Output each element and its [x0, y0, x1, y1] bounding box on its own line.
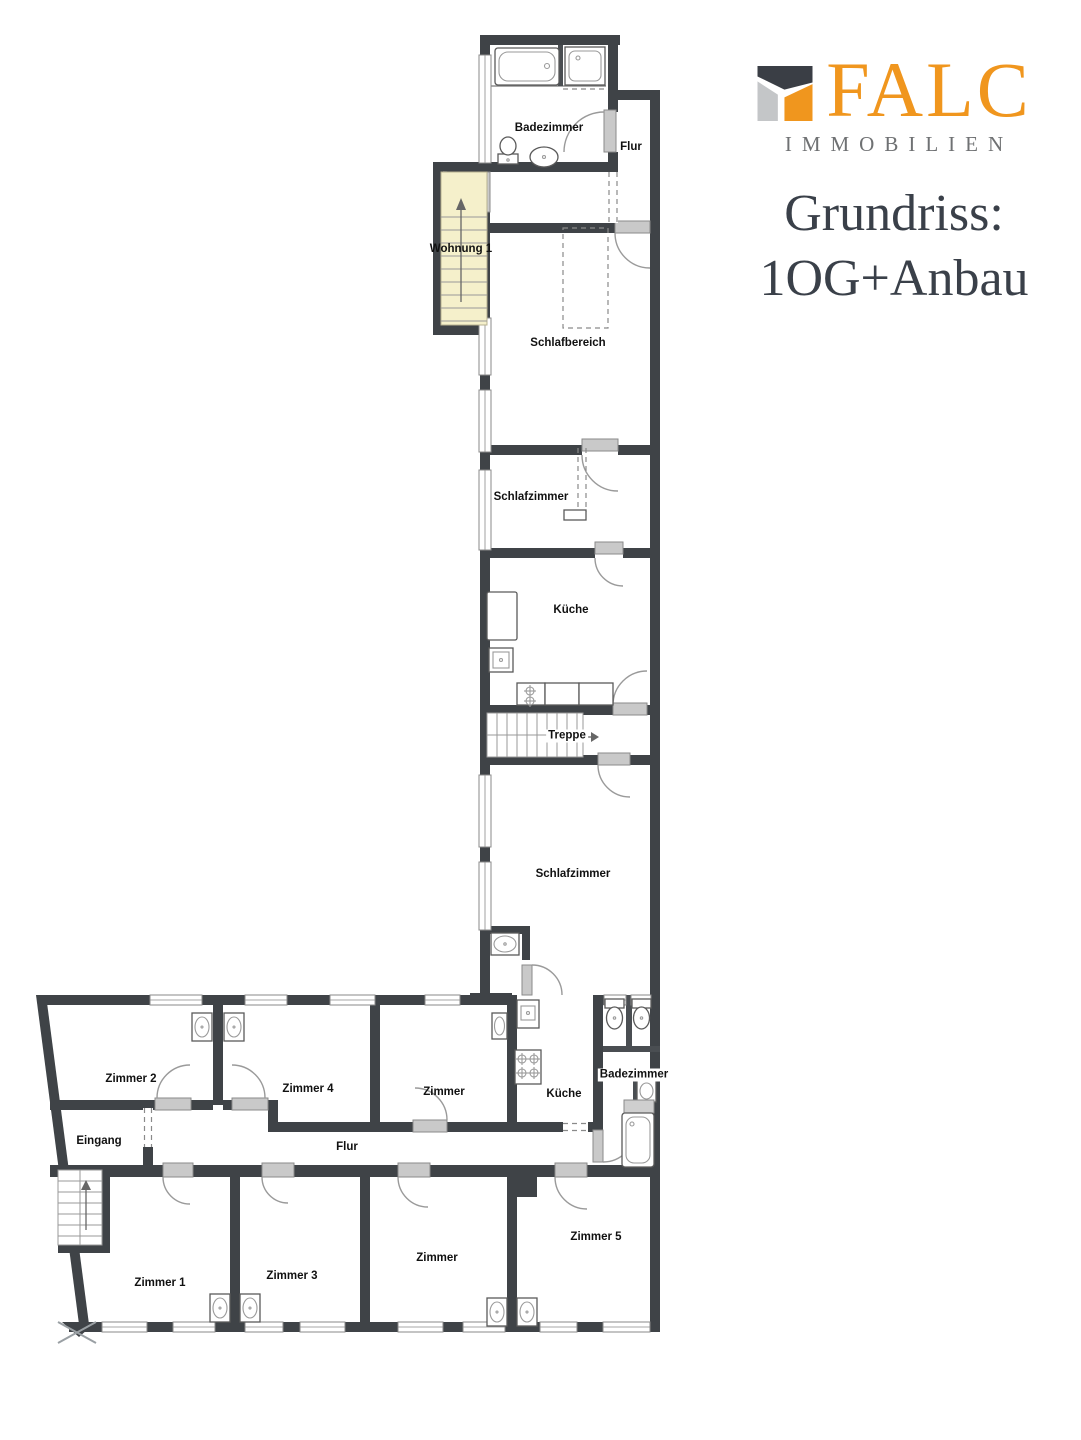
room-label-kueche-anbau: Küche	[546, 1088, 581, 1100]
company-logo-text: FALC	[826, 58, 1032, 122]
door-zimmer-mitte-unten	[398, 1163, 430, 1207]
window	[173, 1322, 215, 1332]
door-treppe	[613, 671, 647, 715]
doors	[155, 110, 650, 1209]
floorplan-page: Badezimmer Flur Wohnung 1 Schlafbereich …	[0, 0, 1081, 1440]
door-flur-schlafbereich	[615, 221, 650, 268]
room-label-schlafzimmer-hinten: Schlafzimmer	[536, 868, 611, 880]
door-zimmer-5	[555, 1163, 587, 1209]
sink-icon	[530, 147, 558, 167]
door-zimmer-1	[163, 1163, 193, 1204]
window	[398, 1322, 443, 1332]
room-label-eingang: Eingang	[76, 1135, 121, 1147]
window	[479, 390, 491, 452]
shower-icon	[565, 47, 605, 85]
window	[479, 775, 491, 847]
room-label-zimmer-4: Zimmer 4	[282, 1083, 333, 1095]
window	[540, 1322, 577, 1332]
window	[425, 995, 460, 1005]
stove-icon	[515, 1050, 541, 1084]
room-label-zimmer-2: Zimmer 2	[105, 1073, 156, 1085]
room-label-zimmer-mitte-unten: Zimmer	[416, 1252, 458, 1264]
room-label-zimmer-1: Zimmer 1	[134, 1277, 185, 1289]
window	[102, 1322, 147, 1332]
window	[245, 1322, 283, 1332]
room-label-flur-anbau: Flur	[336, 1141, 358, 1153]
kitchen-sink-icon	[489, 648, 513, 672]
door-vestibuel	[522, 965, 562, 995]
branding-block: FALC IMMOBILIEN Grundriss: 1OG+Anbau	[738, 58, 1050, 311]
room-label-zimmer-mitte-oben: Zimmer	[423, 1086, 465, 1098]
door-schlafzimmer-hinten	[598, 753, 630, 797]
window	[150, 995, 202, 1005]
sink-icon	[491, 933, 519, 955]
window	[479, 862, 491, 930]
window	[479, 55, 491, 163]
kitchen-counter	[517, 683, 613, 705]
room-label-wohnung-1: Wohnung 1	[430, 243, 492, 255]
stair-direction-arrow	[591, 732, 599, 742]
bathtub-icon	[495, 48, 559, 85]
door-kueche-og	[595, 542, 623, 586]
room-label-flur-og: Flur	[620, 141, 642, 153]
wardrobe-outline	[563, 228, 608, 328]
door-zimmer-4	[232, 1065, 268, 1110]
room-label-schlafzimmer-vorn: Schlafzimmer	[494, 491, 569, 503]
fridge-icon	[487, 592, 517, 640]
room-label-schlafbereich: Schlafbereich	[530, 337, 605, 349]
staircase-eingang	[58, 1170, 102, 1245]
window	[603, 1322, 650, 1332]
window	[479, 470, 491, 550]
room-label-kueche-og: Küche	[553, 604, 588, 616]
window	[300, 1322, 345, 1332]
room-label-zimmer-3: Zimmer 3	[266, 1270, 317, 1282]
company-logo-subtext: IMMOBILIEN	[738, 132, 1050, 157]
room-label-badezimmer-og: Badezimmer	[515, 122, 583, 134]
door-schlafzimmer-vorn	[582, 439, 618, 491]
window	[245, 995, 287, 1005]
bathtub-icon	[622, 1113, 654, 1167]
door-zimmer-3	[262, 1163, 294, 1203]
room-label-treppe: Treppe	[546, 730, 588, 743]
window	[330, 995, 375, 1005]
window	[479, 318, 491, 375]
door-zimmer-2	[155, 1065, 191, 1110]
sink-icon	[492, 1013, 507, 1039]
company-logo-icon	[756, 66, 814, 121]
sink-icon	[637, 1080, 656, 1102]
room-label-badezimmer-anbau: Badezimmer	[598, 1069, 670, 1082]
toilet-icon	[605, 999, 624, 1029]
plan-title-line1: Grundriss:	[738, 181, 1050, 246]
room-label-zimmer-5: Zimmer 5	[570, 1231, 621, 1243]
toilet-icon	[498, 137, 518, 164]
fixtures	[192, 47, 656, 1326]
washer-icon	[624, 1100, 654, 1113]
kitchen-sink-icon	[517, 1000, 539, 1028]
plan-title-line2: 1OG+Anbau	[738, 246, 1050, 311]
toilet-icon	[632, 999, 651, 1029]
